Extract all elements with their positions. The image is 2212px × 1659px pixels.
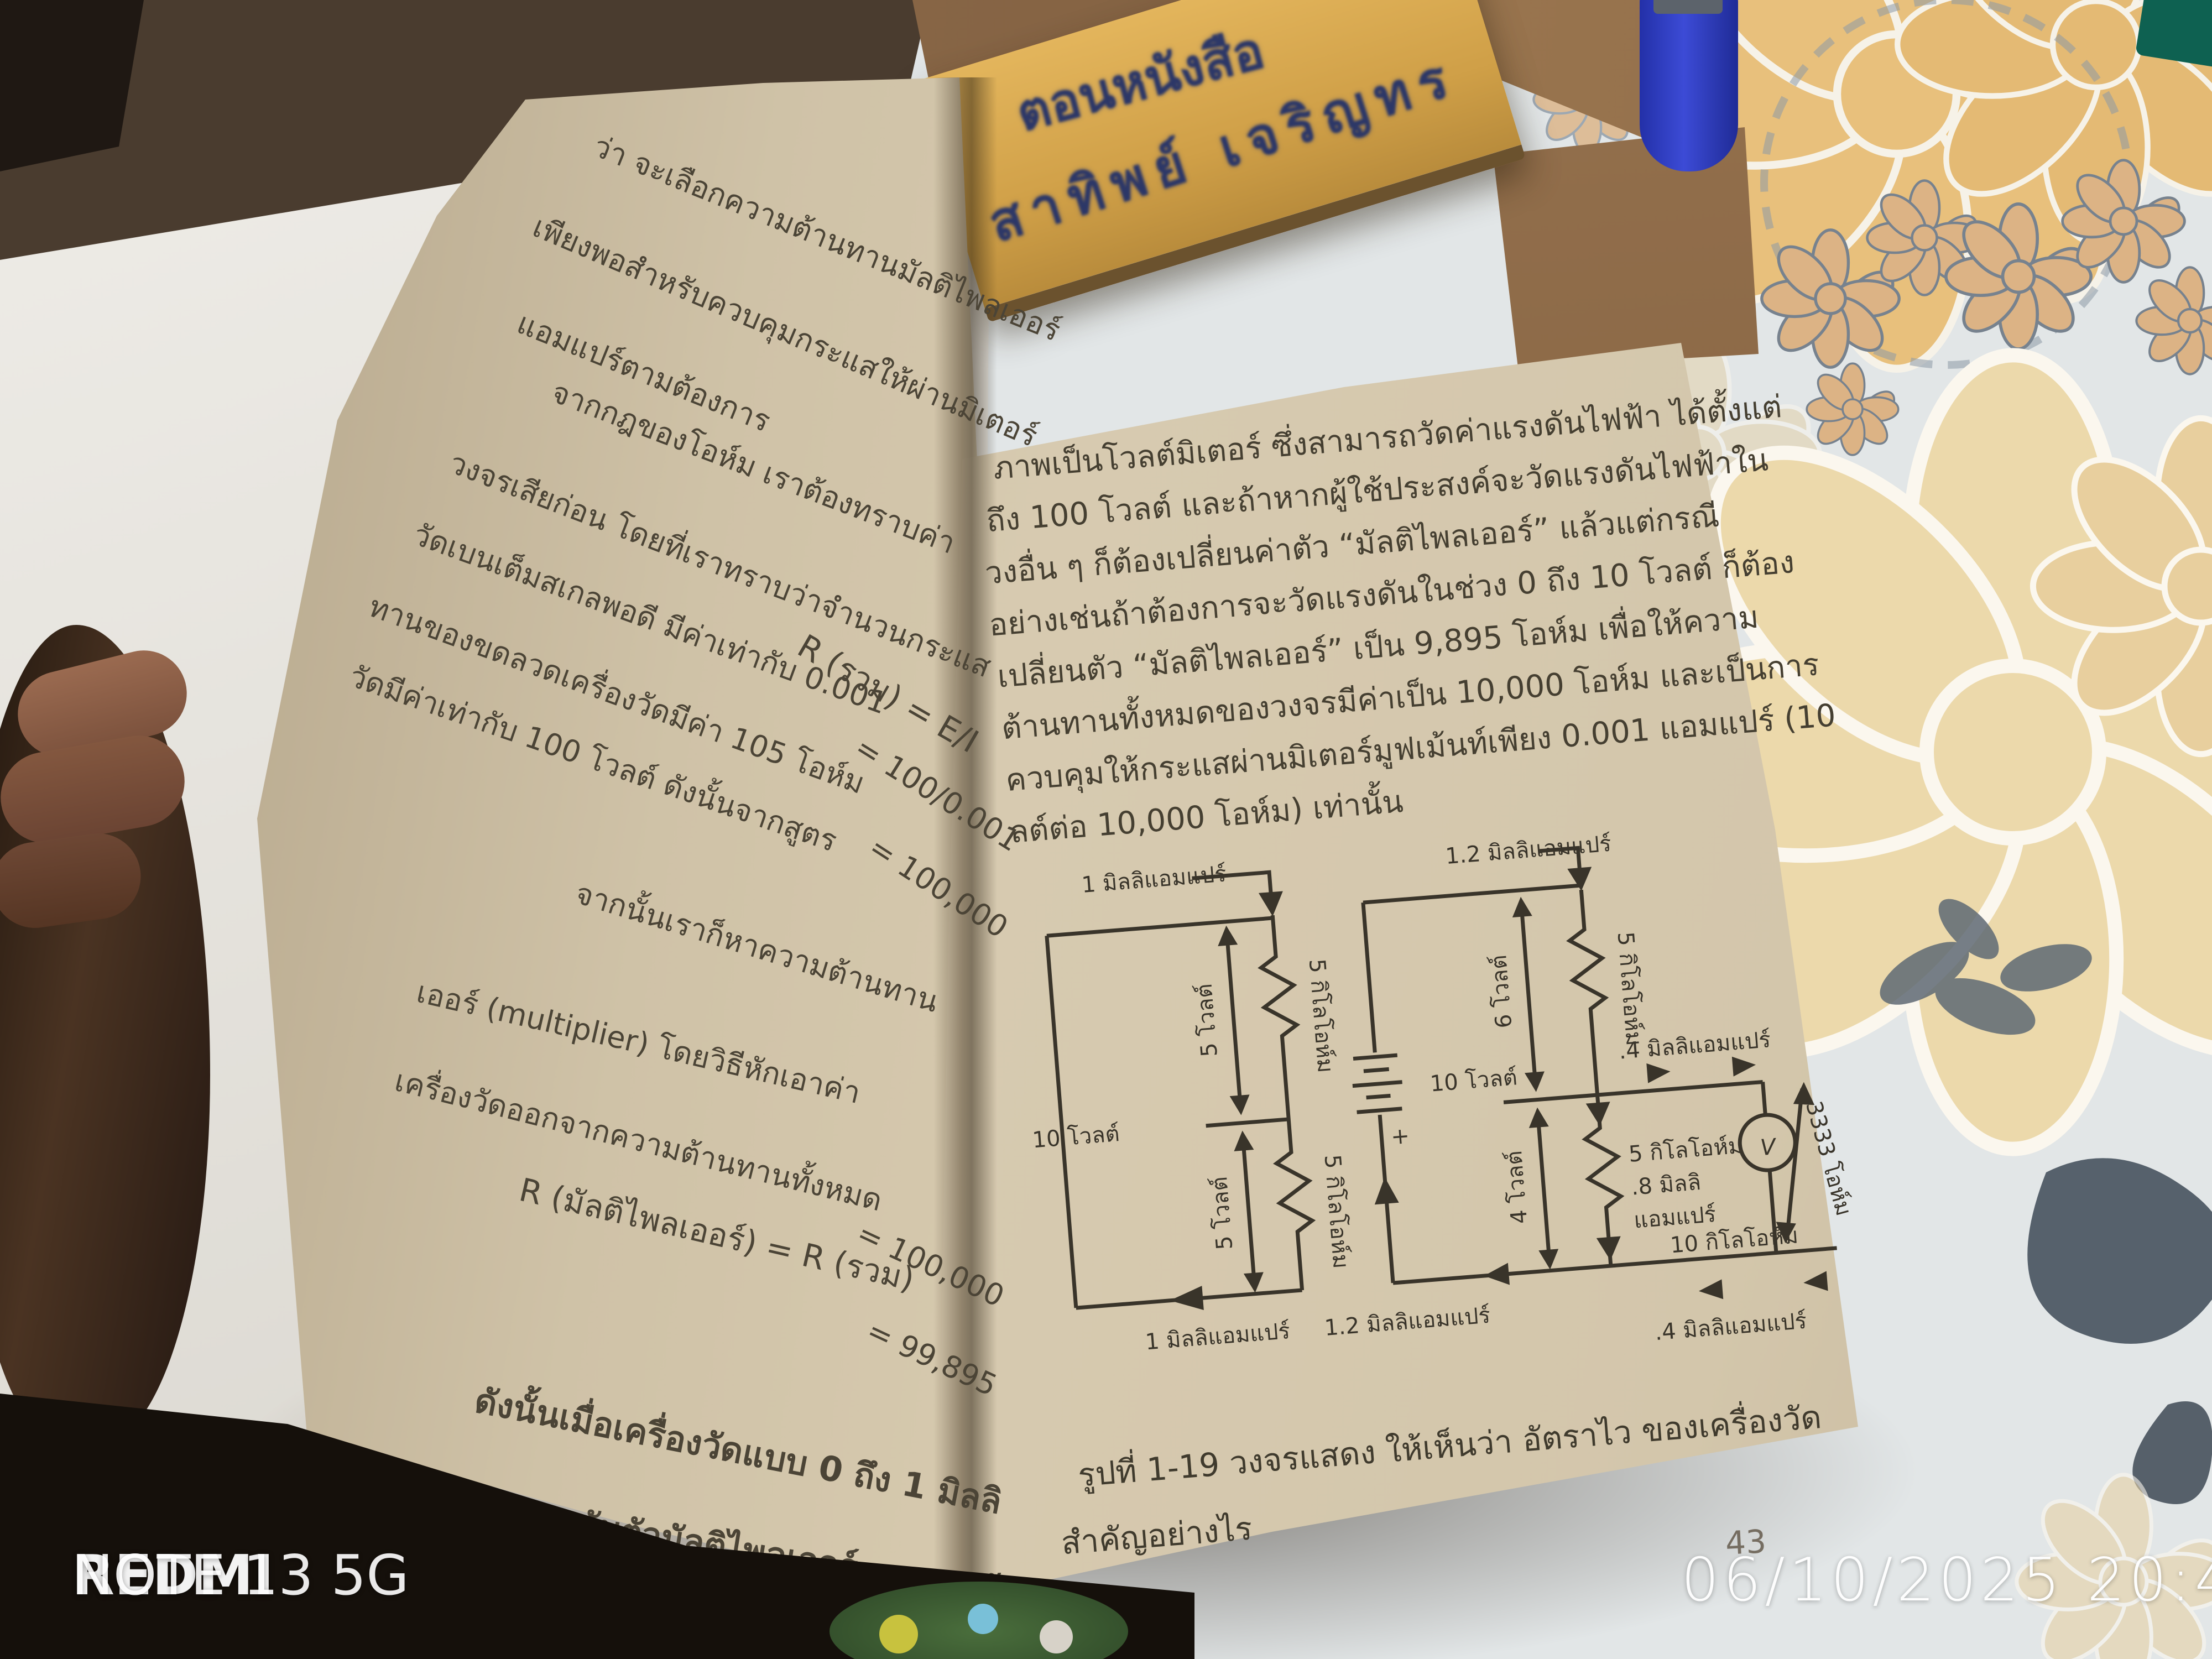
arrow-down xyxy=(1567,867,1593,892)
left-page-equation: = 99,895 xyxy=(862,1313,1002,1403)
label-current-a-bottom: 1 มิลลิแอมแปร์ xyxy=(1144,1318,1291,1355)
label-resistor-a2: 5 กิโลโอห์ม xyxy=(1319,1154,1354,1270)
arrow-down xyxy=(1525,1071,1546,1093)
arrow-left xyxy=(1698,1279,1724,1301)
left-page-line: ว่า จะเลือกความต้านทานมัลติไพลเออร์ xyxy=(586,122,1068,354)
arrow-up xyxy=(1216,925,1238,946)
wire xyxy=(1047,936,1076,1308)
arrow-down xyxy=(1597,1236,1623,1261)
label-volt-b2: 4 โวลต์ xyxy=(1501,1150,1532,1225)
label-resistor-b2-current: .8 มิลลิ xyxy=(1630,1170,1702,1201)
arrow-down xyxy=(1259,891,1285,917)
battery-plus: + xyxy=(1390,1123,1411,1150)
label-resistor-b2: 5 กิโลโอห์ม xyxy=(1627,1133,1744,1167)
label-volt-a-total: 10 โวลต์ xyxy=(1031,1121,1120,1153)
label-current-b-bottom: 1.2 มิลลิแอมแปร์ xyxy=(1323,1302,1491,1340)
camera-timestamp: 06/10/2025 20:44 xyxy=(1681,1546,2212,1615)
branch-wire xyxy=(1598,1082,1763,1095)
arrow-down xyxy=(1230,1094,1251,1116)
blue-pen-cap xyxy=(1640,0,1738,171)
object-dot xyxy=(1040,1620,1073,1653)
left-page-text: ว่า จะเลือกความต้านทานมัลติไพลเออร์ เพีย… xyxy=(254,66,1029,1587)
object-dot xyxy=(879,1615,918,1653)
object-dot xyxy=(968,1604,998,1634)
label-resistor-b1: 5 กิโลโอห์ม xyxy=(1613,931,1647,1047)
photo-scene: ตอนหนังสือ สาทิพย์ เจริญทร ว่า จะเลือกคว… xyxy=(0,0,2212,1659)
arrow-left xyxy=(1483,1263,1510,1287)
label-series-resistance: 3333 โอห์ม xyxy=(1801,1098,1856,1218)
arrow-up xyxy=(1373,1176,1399,1204)
arrow-left xyxy=(1803,1271,1828,1292)
arrow-down xyxy=(1538,1249,1560,1270)
wire xyxy=(1363,885,1581,902)
label-volt-a2: 5 โวลต์ xyxy=(1207,1176,1238,1251)
label-current-b-top: 1.2 มิลลิแอมแปร์ xyxy=(1444,831,1612,869)
arrow-down xyxy=(1244,1272,1265,1293)
arrow-up xyxy=(1511,896,1532,917)
arrow-right xyxy=(1732,1055,1757,1076)
label-volt-b1: 6 โวลต์ xyxy=(1486,954,1517,1029)
label-current-a-top: 1 มิลลิแอมแปร์ xyxy=(1081,861,1227,898)
left-page-line: จากนั้นเราก็หาความต้านทาน xyxy=(570,869,945,1025)
label-volt-a1: 5 โวลต์ xyxy=(1192,983,1223,1058)
label-branch-current-bottom: .4 มิลลิแอมแปร์ xyxy=(1654,1308,1808,1345)
circuit-diagram: 1 มิลลิแอมแปร์ 1 มิลลิแอมแปร์ 5 โวลต์ 5 … xyxy=(1008,799,1879,1427)
arrow-left xyxy=(1169,1286,1204,1313)
pen-tip xyxy=(1653,0,1723,14)
battery-plates xyxy=(1350,1055,1404,1113)
arrow-right xyxy=(1646,1062,1671,1083)
arrow-up xyxy=(1233,1130,1254,1151)
voltmeter-symbol: V xyxy=(1759,1134,1778,1161)
watermark-model: NOTE 13 5G xyxy=(72,1543,409,1608)
label-resistor-a1: 5 กิโลโอห์ม xyxy=(1304,958,1338,1074)
wire xyxy=(1047,918,1273,936)
label-resistor-b2-current2: แอมแปร์ xyxy=(1633,1202,1717,1234)
wire xyxy=(1363,902,1375,1052)
right-page-content: ภาพเป็นโวลต์มิเตอร์ ซึ่งสามารถวัดค่าแรงด… xyxy=(971,325,1897,1658)
figure-caption-line-2: สำคัญอย่างไร xyxy=(1059,1503,1254,1569)
arrow-up xyxy=(1527,1107,1549,1128)
label-battery-volt: 10 โวลต์ xyxy=(1429,1065,1518,1097)
arrow-down xyxy=(1586,1102,1612,1126)
